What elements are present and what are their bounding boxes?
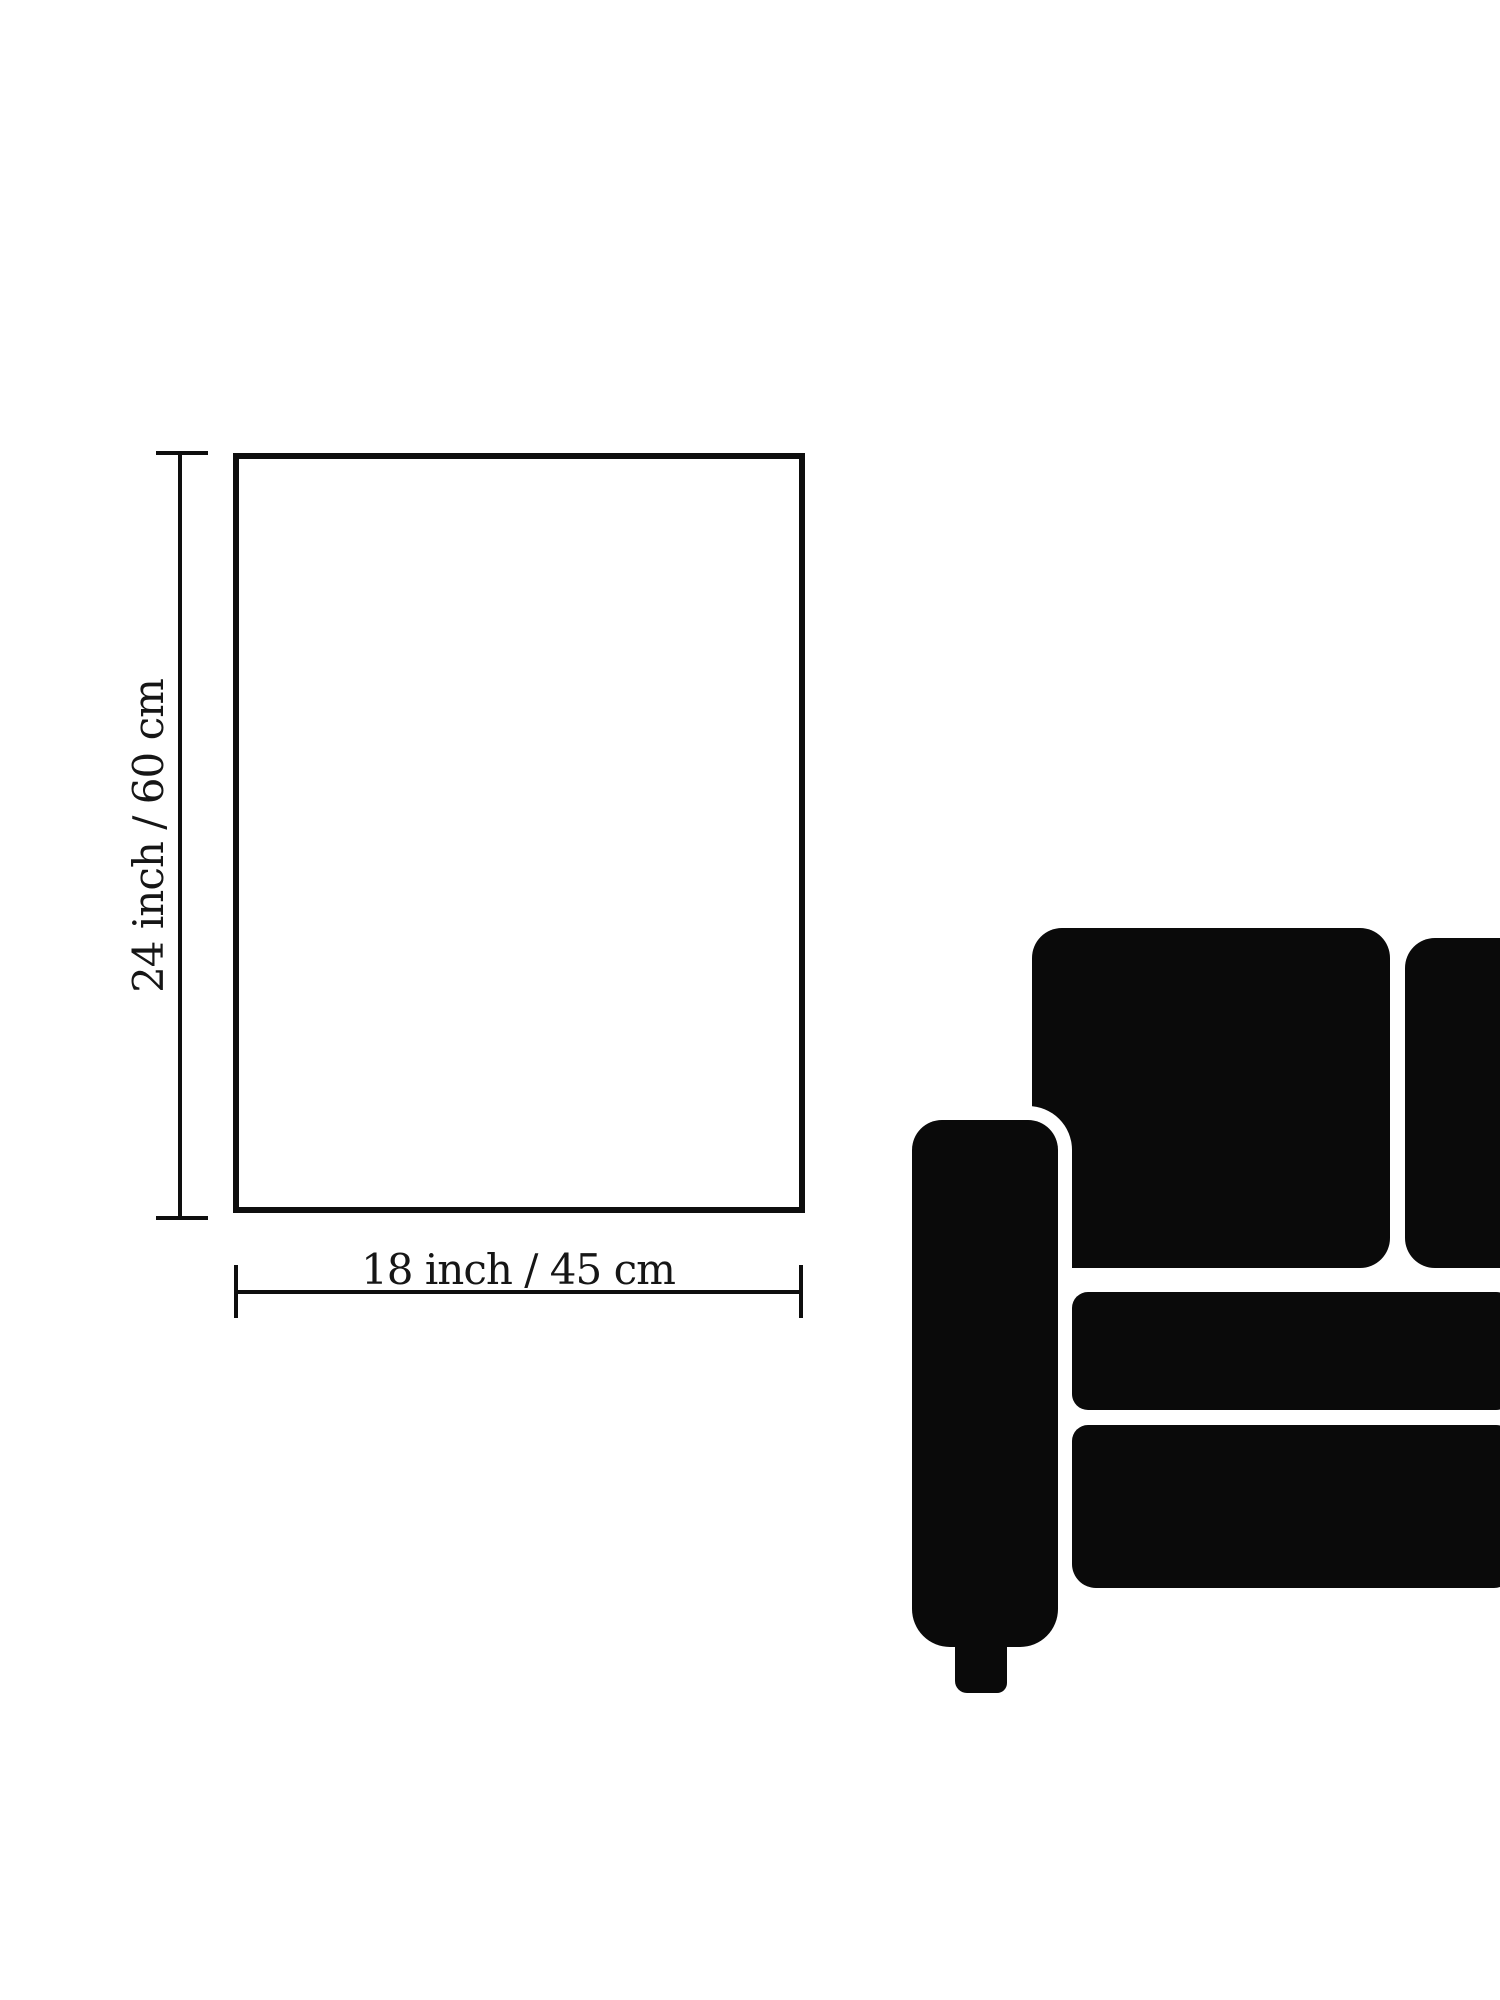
sofa-seat-cushion-bottom-icon (1072, 1425, 1500, 1588)
sofa-backrest-cushion-left-icon (1032, 928, 1390, 1268)
sofa-foot-icon (955, 1645, 1007, 1693)
poster-frame-outline (233, 453, 805, 1213)
sofa-backrest-cushion-right-icon (1405, 938, 1500, 1268)
height-dimension-tick-bottom (156, 1216, 208, 1220)
height-dimension-line (178, 453, 182, 1219)
width-dimension-tick-left (234, 1265, 238, 1318)
width-dimension-tick-right (799, 1265, 803, 1318)
product-dimension-diagram: 24 inch / 60 cm 18 inch / 45 cm (0, 0, 1500, 2000)
width-dimension-label: 18 inch / 45 cm (361, 1249, 675, 1291)
sofa-armrest-icon (912, 1120, 1058, 1647)
height-dimension-tick-top (156, 451, 208, 455)
height-dimension-label: 24 inch / 60 cm (128, 679, 170, 993)
sofa-seat-cushion-top-icon (1072, 1292, 1500, 1410)
